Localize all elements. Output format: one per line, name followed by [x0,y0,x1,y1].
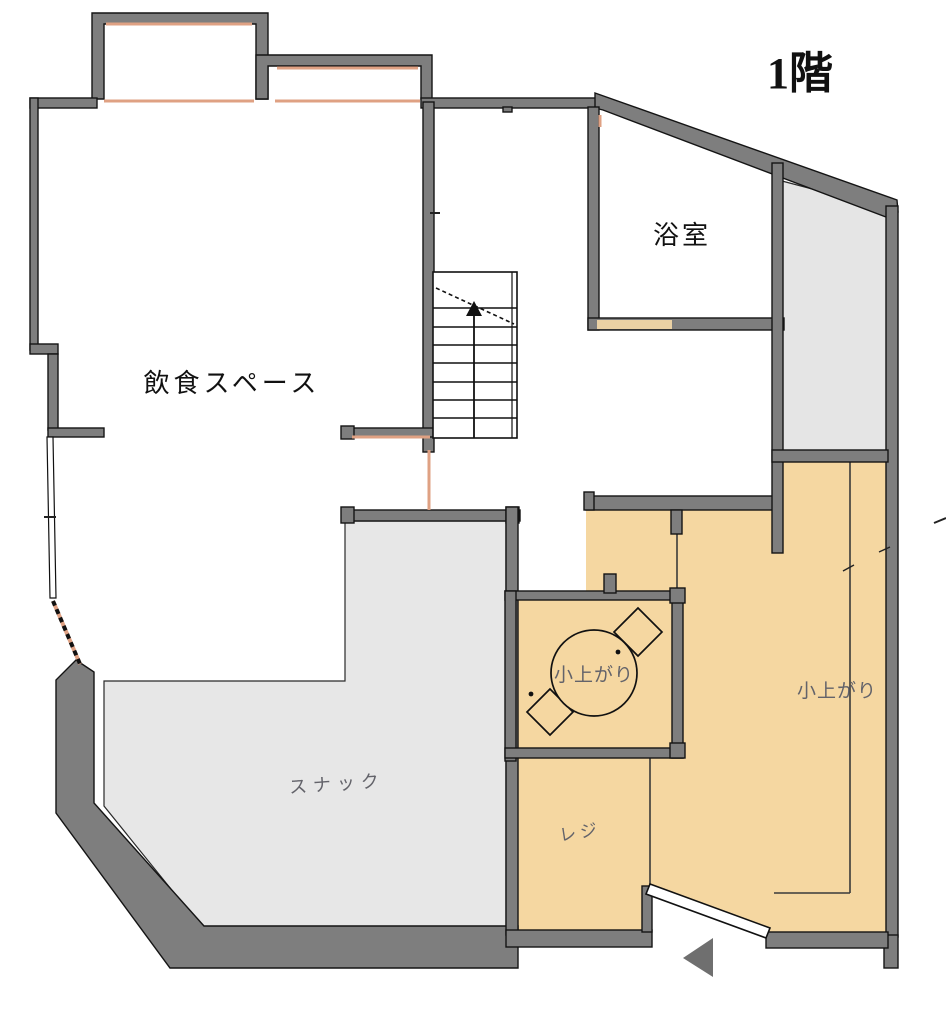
wall-koagari-left [505,591,516,761]
wall-koagari-right [672,591,683,758]
wall-gray-room-left [772,163,783,553]
cushion-dot [616,650,621,655]
wall-bathroom-left [588,107,599,330]
wall-notch [503,107,512,112]
wall-stub [671,510,682,534]
tick [934,518,946,523]
wall-segment [48,428,104,437]
stairs-outline [433,272,517,438]
wall-segment [586,496,774,510]
snack-room-floor [104,521,506,930]
wall-cap [670,743,685,758]
wall-koagari-bottom [505,748,683,758]
cushion-dot [529,692,534,697]
room-label-dining: 飲食スペース [144,369,321,398]
floor-plan-page: 1階 浴室 飲食スペース スナック 小上がり 小上がり レジ [0,0,946,1012]
wall-diagonal-top-right [595,93,898,217]
wall-register-bottom [506,930,652,947]
wall-koagari-top [505,591,683,600]
wall-gray-room-bottom [772,450,888,462]
wall-segment [48,354,58,430]
wall-bay-window-2 [256,55,432,99]
wall-left-outer [30,98,38,350]
wall-right-outer [886,206,898,937]
wall-bottom-right [766,932,888,948]
stairs [433,272,517,438]
gray-room-top-right [782,181,888,454]
wall-segment [30,344,58,354]
wall-bay-window-1 [92,13,268,99]
register-area-floor [506,753,652,935]
wall-segment [30,98,97,108]
wall-snack-top [343,510,520,521]
wall-cap [670,588,685,603]
floor-title: 1階 [767,49,833,98]
room-label-koagari-center: 小上がり [554,664,634,686]
bathroom-door [597,320,672,329]
wall-stub [604,574,616,593]
entrance-arrow-icon [683,938,713,977]
room-label-koagari-right: 小上がり [797,680,877,702]
room-label-bathroom: 浴室 [653,221,711,250]
floor-plan-canvas: 1階 浴室 飲食スペース スナック 小上がり 小上がり レジ [0,0,946,1012]
wall-cap [341,507,354,523]
wall-cap [584,492,594,510]
